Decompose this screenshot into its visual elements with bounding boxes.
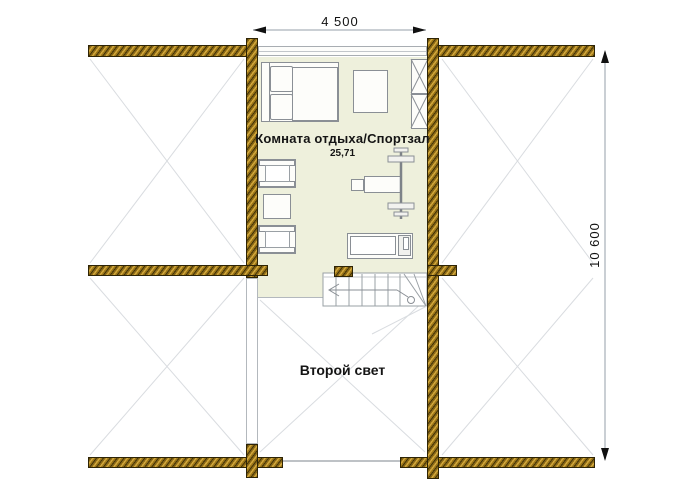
wall-top-left: [88, 45, 258, 57]
room-area-label: 25,71: [258, 148, 427, 159]
void-label: Второй свет: [258, 362, 427, 378]
dimension-width-label: 4 500: [290, 14, 390, 29]
wall-top-right: [427, 45, 595, 57]
roof-cross-lines: [90, 59, 593, 455]
arrow-left-icon: [253, 27, 266, 34]
room-label: Комната отдыха/Спортзал: [253, 131, 432, 146]
arrow-right-icon: [413, 27, 426, 34]
window-glazing-line: [259, 51, 426, 52]
wall-middle-left: [88, 265, 268, 276]
shelving-brace-lines: [411, 59, 428, 128]
wall-stair-stub: [334, 266, 353, 277]
arrow-up-icon: [601, 50, 609, 63]
dimension-height-label: 10 600: [587, 215, 603, 275]
wall-interior-right: [427, 38, 439, 479]
wall-interior-left-bottom-stub: [246, 444, 258, 478]
arrow-down-icon: [601, 448, 609, 461]
window-top: [258, 46, 427, 56]
stairs: [323, 273, 427, 334]
wall-interior-left: [246, 38, 258, 278]
floor-plan: 4 500 10 600 Комната отдыха/Спортзал 25,…: [0, 0, 700, 495]
stairs-travel-line: [372, 306, 427, 334]
wall-middle-right-stub: [427, 265, 457, 276]
